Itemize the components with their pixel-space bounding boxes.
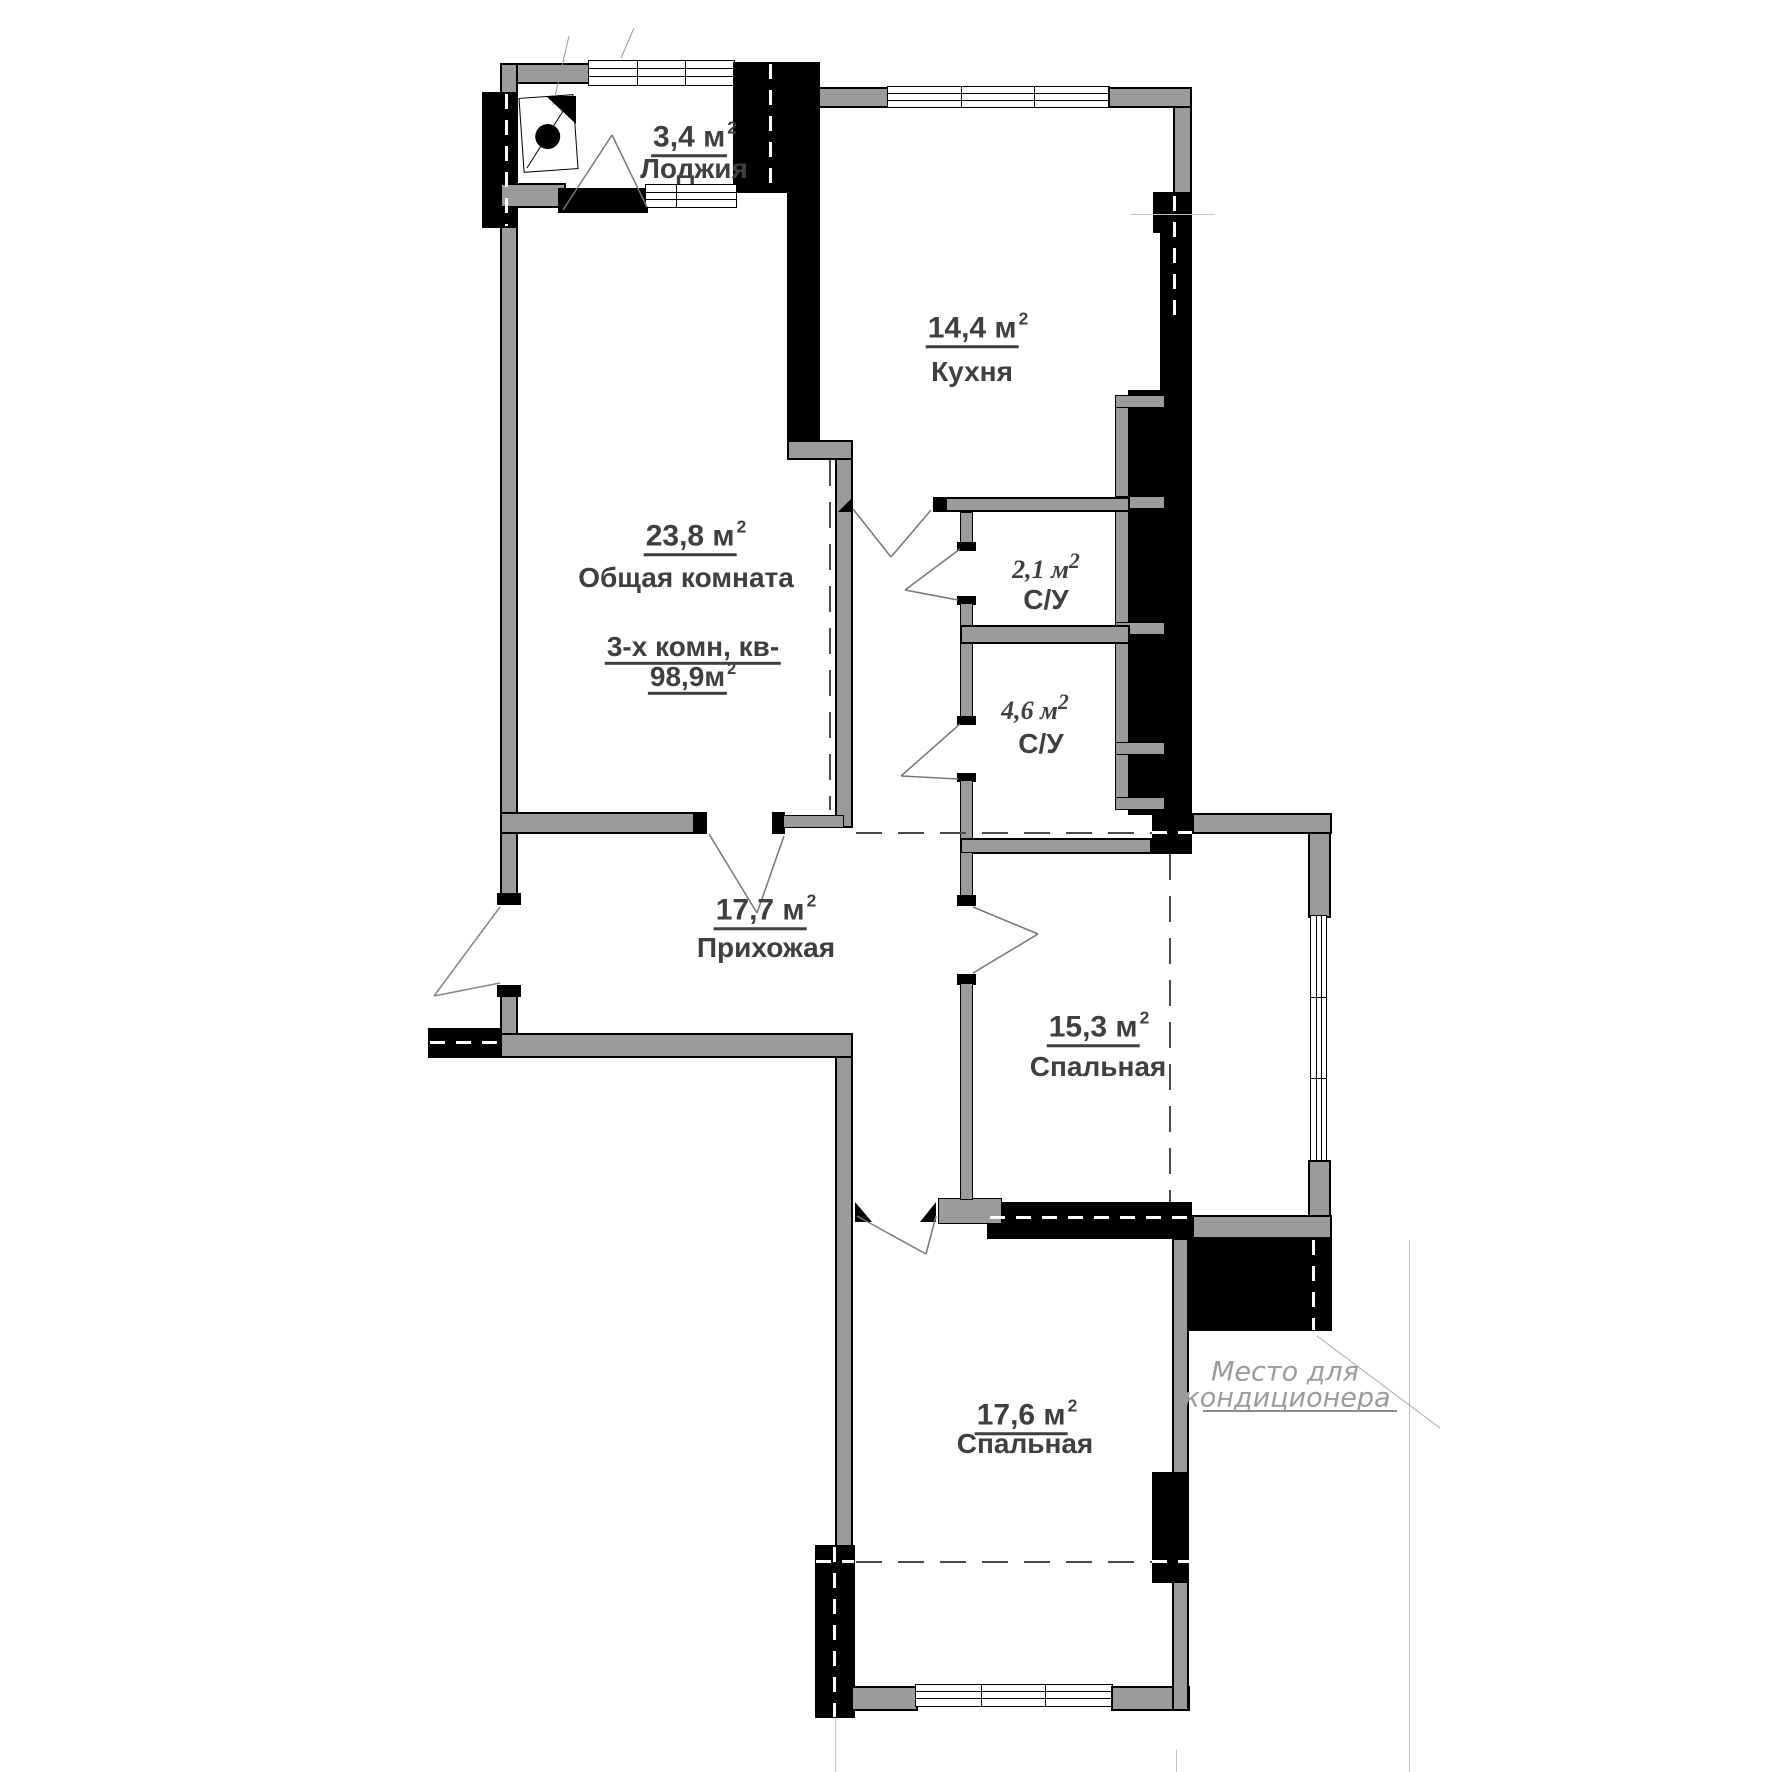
room-area-loggia: 3,4 м2 [651,119,737,157]
zone-dashed-line [1152,1560,1190,1563]
entrance-door-swing [434,983,500,996]
axis-line [769,64,772,192]
opening-dashed-line [990,1216,1190,1219]
zone-dashed-line [856,832,1152,834]
room-name-loggia: Лоджия [640,153,748,185]
room-name-bedroom2: Спальная [957,1428,1094,1460]
room-name-hallway: Прихожая [697,932,835,964]
door-jamb [957,895,976,906]
wall-segment [938,1198,1002,1224]
door-jamb-triangle [855,1202,872,1222]
wall-segment [783,815,844,828]
wall-segment [960,512,973,545]
zone-dashed-line [856,1561,1152,1563]
room-name-kitchen: Кухня [931,356,1013,388]
door-swing-line [901,776,958,779]
door-swing-line [891,510,931,557]
wall-segment [960,983,973,1200]
floor-plan: 3,4 м2 Лоджия 14,4 м2 Кухня 23,8 м2 Обща… [0,0,1772,1772]
room-area-wc-large: 4,6 м2 [1001,690,1069,726]
wall-segment [787,440,853,460]
wall-segment [987,1202,1192,1239]
wall-segment [1192,1215,1332,1239]
door-swing-line [857,1216,926,1254]
door-swing-line [973,934,1038,973]
door-swing-line [926,1216,936,1254]
axis-line [833,1547,836,1717]
kitchen-window [887,86,1110,108]
wall-segment [933,497,1130,512]
wall-segment [500,812,695,834]
axis-line [505,94,508,226]
door-jamb [497,893,521,905]
room-name-living: Общая комната [578,562,794,594]
wall-segment [1192,813,1332,834]
wall-segment [960,643,973,719]
wall-segment [960,838,1152,854]
reference-line [835,1718,836,1772]
door-jamb [957,542,976,551]
wall-segment [851,1686,918,1711]
door-jamb [933,497,947,512]
axis-line [1312,1240,1315,1330]
door-jamb-triangle [920,1202,936,1222]
wall-segment [500,1033,853,1058]
room-area-bedroom1: 15,3 м2 [1047,1009,1150,1047]
vent-shaft-fin [1115,395,1165,408]
wall-segment [500,183,566,208]
door-jamb [497,985,521,997]
zone-dashed-line [1169,854,1171,1202]
room-area-wc-small: 2,1 м2 [1012,549,1080,585]
door-swing-line [905,590,958,600]
wall-segment [787,193,820,442]
door-swing-line [973,907,1038,934]
door-swing-line [905,549,960,590]
wall-segment [960,625,1130,644]
wall-segment [1173,106,1192,194]
door-swing-line [901,724,960,776]
room-name-wc-large: С/У [1018,728,1063,760]
ac-note-line2: кондиционера [1183,1383,1390,1414]
room-name-bedroom1: Спальная [1030,1051,1167,1083]
vent-shaft-fin [1115,742,1165,755]
axis-line [430,1041,500,1044]
bedroom2-window [915,1684,1113,1707]
room-name-wc-small: С/У [1023,584,1068,616]
apartment-area-label: 98,9м2 [648,661,736,695]
wall-segment [835,458,853,828]
wall-segment [1172,1581,1189,1711]
sink-icon [518,94,578,173]
wall-segment [1152,1472,1189,1583]
loggia-top-window [588,60,735,86]
zone-dashed-line [829,460,831,810]
door-jamb [693,812,707,834]
room-area-living: 23,8 м2 [644,518,747,556]
loggia-bottom-window [645,184,737,208]
wall-segment [960,852,973,897]
leader-line [621,28,634,58]
door-swing-line [853,509,891,557]
reference-line [1130,214,1215,215]
wall-segment [835,1056,853,1547]
wall-segment [960,603,973,627]
annotations-overlay [0,0,1772,1772]
wall-segment [1160,232,1192,395]
bay-window [1310,915,1327,1162]
reference-line [1176,1750,1177,1772]
wall-segment [818,87,890,108]
wall-segment [1108,87,1192,108]
entrance-door-swing [434,907,500,996]
wall-segment [1308,832,1331,918]
room-area-kitchen: 14,4 м2 [926,310,1029,348]
room-area-hallway: 17,7 м2 [714,892,817,930]
zone-dashed-line [1152,831,1192,834]
door-jamb [957,716,976,725]
balcony-door-leaf [558,188,648,213]
ac-unit-block [1188,1238,1332,1331]
wall-segment [1172,1238,1189,1474]
reference-line [1409,1240,1410,1772]
vent-shaft-fin [1115,797,1165,810]
